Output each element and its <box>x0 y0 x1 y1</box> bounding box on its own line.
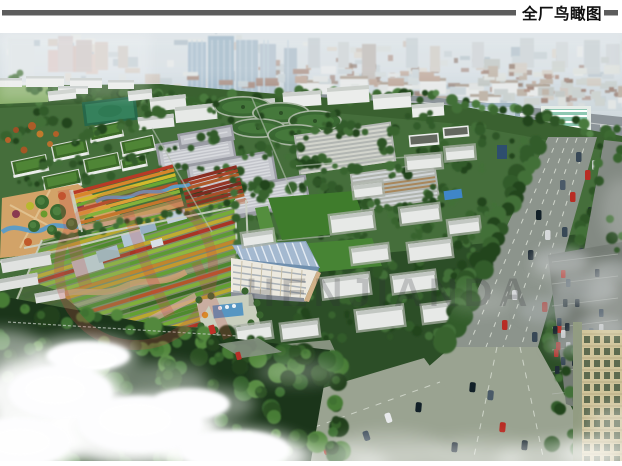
svg-text:全厂鸟瞰图: 全厂鸟瞰图 <box>521 4 602 23</box>
